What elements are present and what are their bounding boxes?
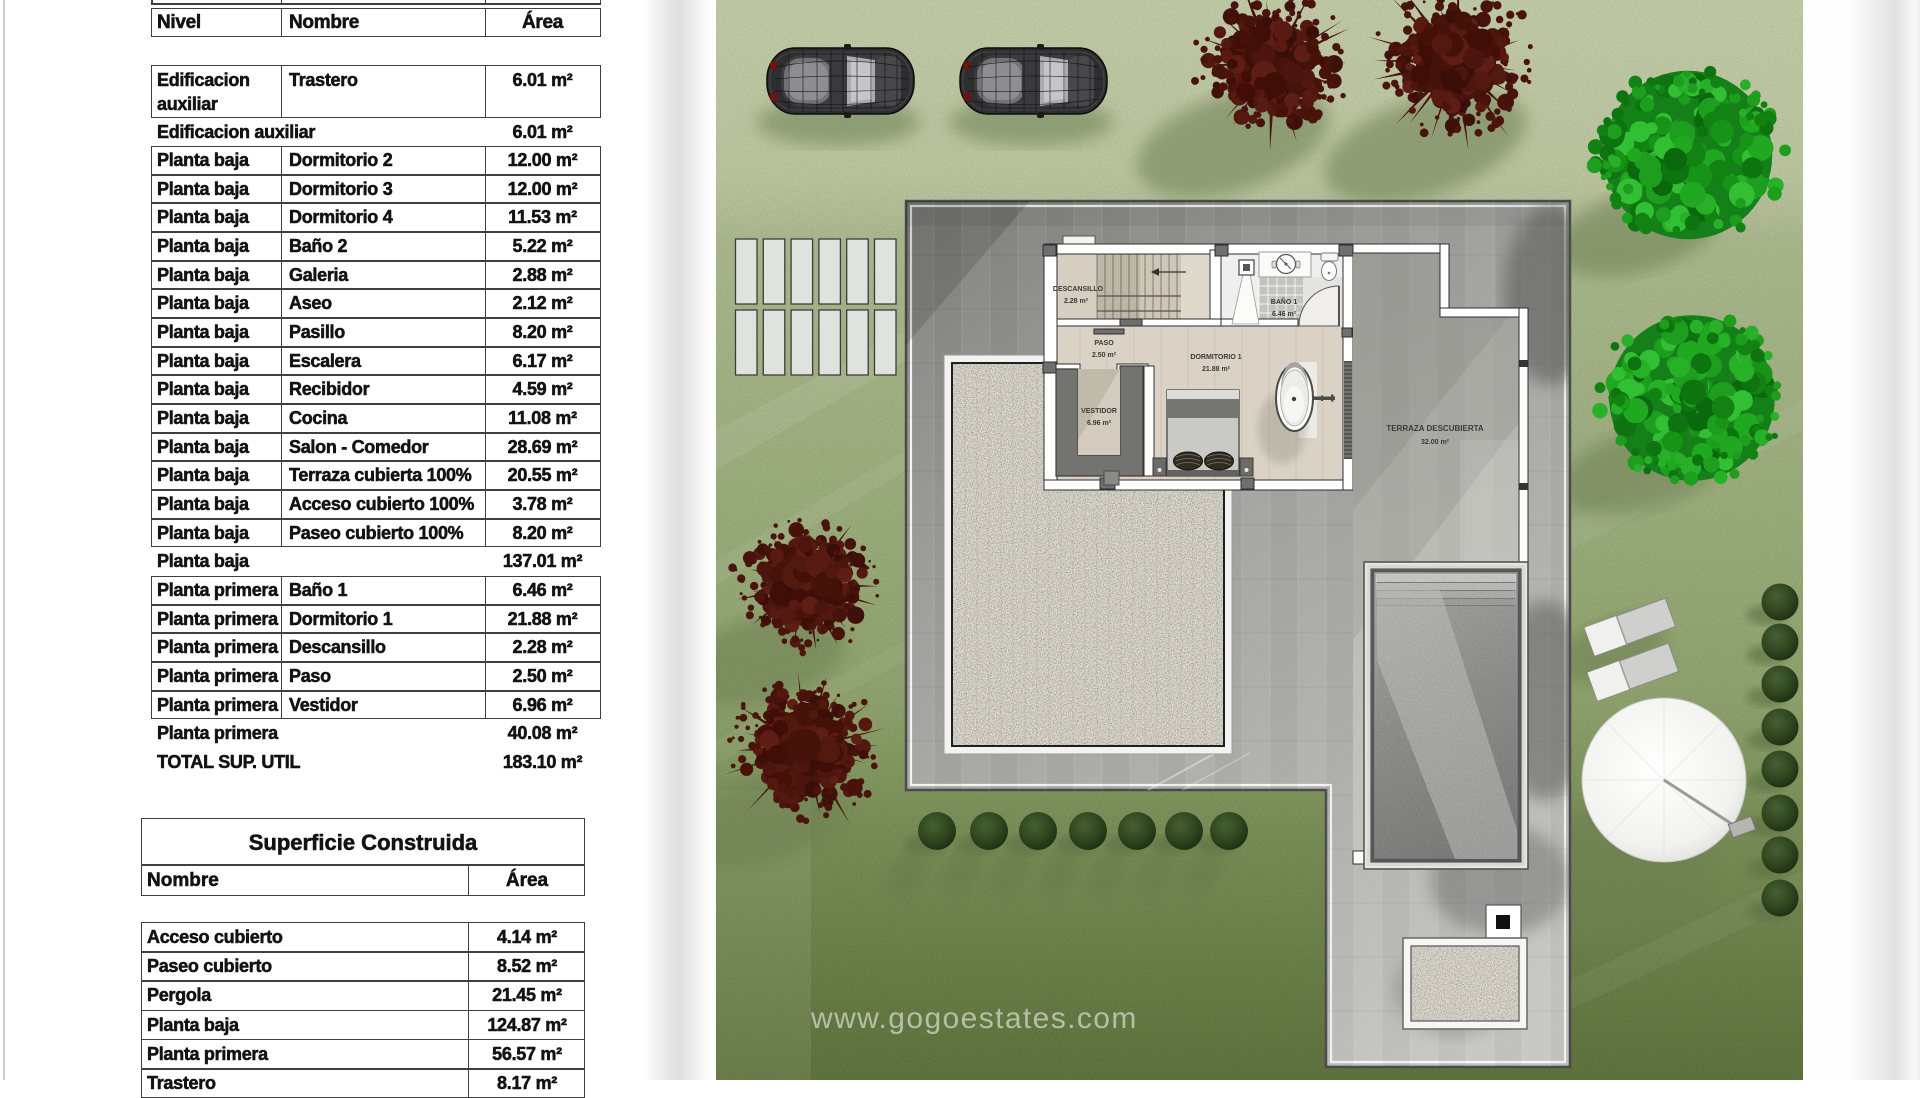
svg-text:6.46 m²: 6.46 m²: [1272, 311, 1297, 318]
svg-text:21.88 m²: 21.88 m²: [1202, 366, 1231, 373]
svg-text:BAÑO 1: BAÑO 1: [1271, 297, 1298, 306]
svg-text:PASO: PASO: [1094, 340, 1114, 347]
svg-text:VESTIDOR: VESTIDOR: [1081, 408, 1117, 415]
svg-text:DORMITORIO 1: DORMITORIO 1: [1190, 354, 1241, 361]
svg-text:www.gogoestates.com: www.gogoestates.com: [810, 1002, 1138, 1035]
svg-text:DESCANSILLO: DESCANSILLO: [1053, 286, 1104, 293]
svg-text:2.50 m²: 2.50 m²: [1092, 352, 1117, 359]
svg-text:TERRAZA DESCUBIERTA: TERRAZA DESCUBIERTA: [1386, 424, 1484, 433]
svg-text:6.96 m²: 6.96 m²: [1087, 420, 1112, 427]
svg-text:32.00 m²: 32.00 m²: [1421, 439, 1450, 446]
svg-text:2.28 m²: 2.28 m²: [1064, 298, 1089, 305]
